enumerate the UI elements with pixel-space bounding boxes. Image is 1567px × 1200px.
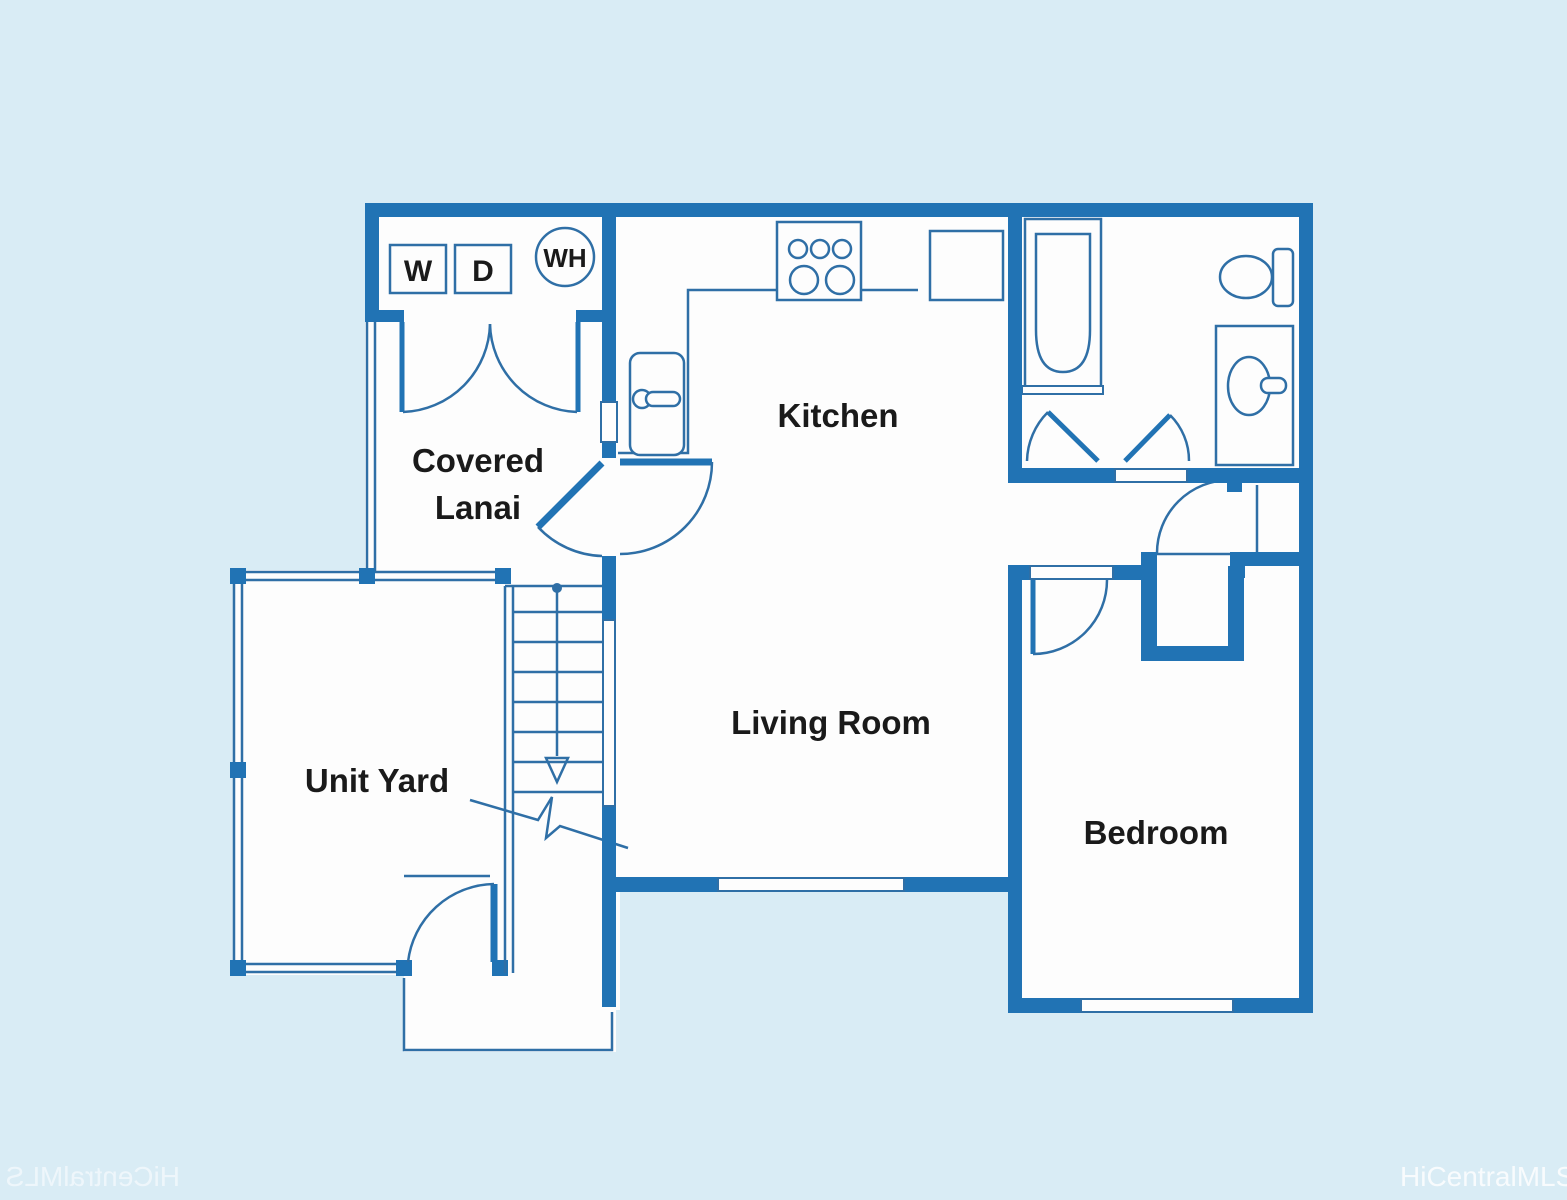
label-washer: W — [404, 255, 433, 288]
wall-kitchen-west-mid — [602, 556, 616, 620]
wall-closet-bottom — [1141, 646, 1244, 661]
wall-hinge-stub-bath — [1227, 470, 1242, 492]
label-bedroom: Bedroom — [1084, 814, 1229, 851]
vanity-sink-icon — [1216, 326, 1293, 465]
stairwell-wall-opening — [603, 620, 615, 806]
fence-post — [495, 568, 511, 584]
bathtub-icon — [1025, 219, 1101, 388]
wall-jog — [1141, 552, 1157, 580]
label-dryer: D — [472, 255, 494, 288]
wall-closet-left — [1141, 580, 1157, 648]
wall-bedroom-west — [1008, 566, 1022, 1013]
fence-post — [359, 568, 375, 584]
patio-interior — [404, 876, 616, 1052]
fence-post — [230, 762, 246, 778]
bedroom-interior — [1008, 566, 1313, 1013]
wall-lanai-left — [365, 203, 379, 322]
label-kitchen: Kitchen — [777, 397, 898, 434]
label-water-heater: WH — [543, 243, 586, 273]
label-covered-lanai-line2: Lanai — [435, 489, 521, 526]
bedroom-window — [1081, 999, 1233, 1012]
fence-post — [230, 568, 246, 584]
fence-post — [230, 960, 246, 976]
floor-plan-drawing: Covered Lanai Kitchen Living Room Unit Y… — [0, 0, 1567, 1200]
floor-plan-canvas: Covered Lanai Kitchen Living Room Unit Y… — [0, 0, 1567, 1200]
wall-exterior-top — [365, 203, 1313, 217]
wall-kitchen-west-lower — [602, 806, 616, 1007]
wall-closet-right — [1228, 566, 1244, 646]
wall-laundry-stub-left — [365, 310, 404, 322]
wall-kitchen-bath-divider — [1008, 217, 1022, 483]
kitchen-sink-icon — [630, 353, 684, 455]
refrigerator-icon — [930, 231, 1003, 300]
watermark-bottom-left-mirrored: HiCentralMLS — [6, 1161, 180, 1192]
lanai-wall-window — [601, 402, 617, 442]
label-living-room: Living Room — [731, 704, 931, 741]
tub-enclosure-wall — [1022, 386, 1103, 394]
stove-icon — [777, 222, 861, 300]
fence-post — [396, 960, 412, 976]
label-covered-lanai-line1: Covered — [412, 442, 544, 479]
bedroom-threshold — [1030, 566, 1113, 579]
living-room-window — [718, 878, 904, 891]
wall-kitchen-west-upper — [602, 217, 616, 402]
label-unit-yard: Unit Yard — [305, 762, 449, 799]
bathroom-threshold — [1115, 469, 1187, 482]
watermark-bottom-right: HiCentralMLS — [1400, 1161, 1567, 1192]
wall-exterior-right — [1299, 203, 1313, 1013]
